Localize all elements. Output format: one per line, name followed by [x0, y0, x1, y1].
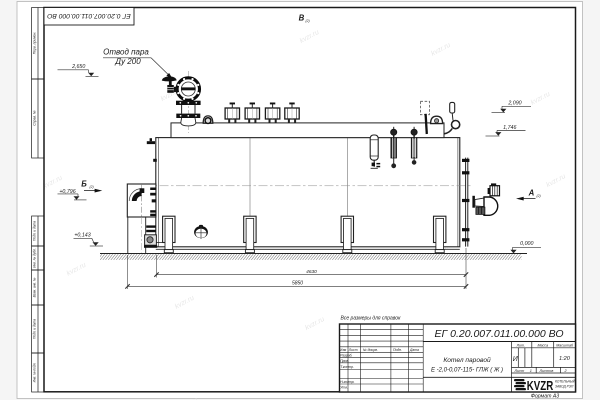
svg-text:+0,143: +0,143 — [74, 233, 90, 239]
svg-text:Лист: Лист — [348, 348, 358, 352]
svg-text:Справ. №: Справ. № — [33, 110, 37, 126]
svg-text:ЕГ 0.20.007.011.00.000 ВО: ЕГ 0.20.007.011.00.000 ВО — [47, 12, 131, 19]
svg-text:Ду 200: Ду 200 — [114, 57, 141, 66]
svg-text:Взам. инв. №: Взам. инв. № — [33, 277, 37, 297]
svg-text:ЗАВОД РЭП: ЗАВОД РЭП — [555, 385, 574, 389]
svg-text:Масштаб: Масштаб — [556, 343, 574, 347]
svg-text:Лит.: Лит. — [516, 343, 525, 347]
svg-text:+0,796: +0,796 — [59, 189, 75, 195]
svg-text:Перв. примен.: Перв. примен. — [33, 32, 37, 55]
svg-text:Е -2,0-0,07-115- ГЛЖ ( Ж ): Е -2,0-0,07-115- ГЛЖ ( Ж ) — [431, 367, 503, 373]
svg-text:Инв. № дубл.: Инв. № дубл. — [33, 248, 37, 268]
svg-text:Лист: Лист — [514, 369, 525, 373]
svg-text:Масса: Масса — [537, 343, 548, 347]
svg-text:Подп. и дата: Подп. и дата — [33, 221, 37, 241]
svg-text:Н.контр.: Н.контр. — [340, 380, 354, 384]
svg-text:Подп. и дата: Подп. и дата — [33, 319, 37, 339]
svg-text:Отвод пара: Отвод пара — [103, 48, 149, 57]
svg-text:Формат А3: Формат А3 — [531, 393, 559, 399]
svg-text:(2): (2) — [306, 19, 310, 23]
svg-text:Все размеры для справок: Все размеры для справок — [341, 316, 402, 322]
svg-text:ЕГ 0.20.007.011.00.000 ВО: ЕГ 0.20.007.011.00.000 ВО — [434, 328, 563, 340]
svg-text:Листов: Листов — [539, 369, 554, 373]
svg-text:Котел паровой: Котел паровой — [443, 356, 491, 364]
svg-text:KVZR: KVZR — [527, 378, 553, 393]
svg-text:4630: 4630 — [306, 269, 317, 275]
svg-text:Разраб.: Разраб. — [340, 354, 352, 358]
svg-text:Б: Б — [81, 180, 87, 189]
svg-text:2,090: 2,090 — [507, 101, 521, 107]
svg-text:1: 1 — [530, 369, 532, 373]
svg-text:(2): (2) — [90, 185, 94, 189]
svg-text:Подп.: Подп. — [393, 348, 402, 352]
svg-text:Инв. № подл.: Инв. № подл. — [33, 362, 37, 382]
svg-text:Изм: Изм — [340, 348, 347, 352]
svg-text:5850: 5850 — [292, 281, 303, 287]
svg-text:(2): (2) — [537, 194, 541, 198]
svg-text:Т.контр.: Т.контр. — [340, 365, 354, 369]
svg-text:КОТЕЛЬНЫЙ: КОТЕЛЬНЫЙ — [555, 380, 576, 384]
svg-text:1:20: 1:20 — [559, 356, 571, 362]
svg-text:0,000: 0,000 — [520, 241, 533, 247]
svg-text:1,746: 1,746 — [503, 125, 516, 131]
svg-text:2,650: 2,650 — [71, 64, 85, 70]
svg-text:Утв.: Утв. — [340, 386, 348, 390]
svg-text:Дата: Дата — [409, 348, 419, 352]
svg-text:А: А — [528, 188, 535, 197]
svg-text:№ докум.: № докум. — [363, 348, 378, 352]
svg-text:В: В — [299, 14, 305, 23]
svg-text:Пров.: Пров. — [340, 359, 349, 363]
